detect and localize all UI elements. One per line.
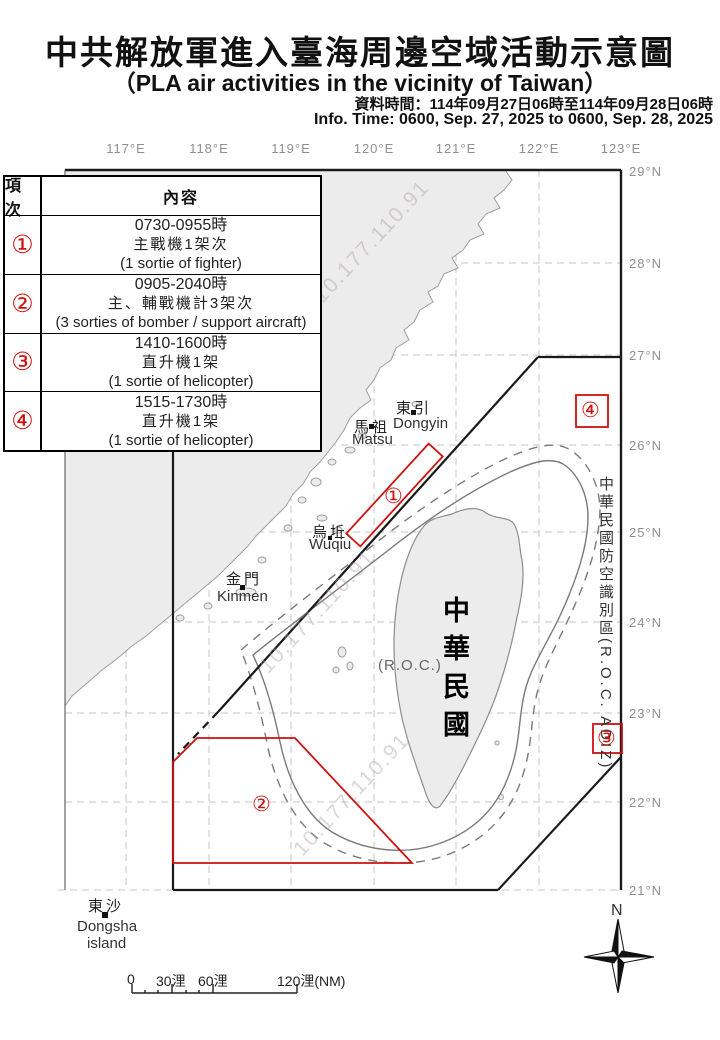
- pla-activity-map-page: 中共解放軍進入臺海周邊空域活動示意圖 （PLA air activities i…: [0, 0, 720, 1040]
- row-number: ①: [5, 216, 42, 274]
- lat-label-27: 27°N: [629, 348, 662, 363]
- lat-label-24: 24°N: [629, 615, 662, 630]
- row-time: 1410-1600時: [135, 334, 228, 353]
- activity-table: 項次 內容 ① 0730-0955時 主戰機1架次 (1 sortie of f…: [3, 175, 322, 452]
- lat-label-21: 21°N: [629, 883, 662, 898]
- table-header-item: 項次: [5, 177, 42, 215]
- lat-label-29: 29°N: [629, 164, 662, 179]
- row-desc-zh: 主、輔戰機計3架次: [108, 294, 254, 313]
- scale-0: 0: [127, 971, 135, 987]
- scale-120: 120浬(NM): [277, 971, 345, 991]
- row-desc-zh: 直升機1架: [142, 412, 220, 431]
- dongyin-label-en: Dongyin: [393, 415, 448, 432]
- row-time: 0730-0955時: [135, 216, 228, 235]
- lat-label-22: 22°N: [629, 795, 662, 810]
- dongsha-label-zh: 東沙: [88, 895, 124, 916]
- info-time-en: Info. Time: 0600, Sep. 27, 2025 to 0600,…: [314, 111, 713, 129]
- scale-60: 60浬: [198, 971, 228, 991]
- lon-label-117: 117°E: [98, 141, 154, 156]
- row-desc-en: (3 sorties of bomber / support aircraft): [56, 313, 307, 332]
- row-desc-zh: 直升機1架: [142, 353, 220, 372]
- lon-label-121: 121°E: [428, 141, 484, 156]
- row-desc-en: (1 sortie of helicopter): [108, 372, 253, 391]
- table-header-row: 項次 內容: [5, 177, 320, 215]
- lon-label-119: 119°E: [263, 141, 319, 156]
- row-number: ③: [5, 334, 42, 392]
- row-number: ②: [5, 275, 42, 333]
- marker-1: ①: [384, 486, 403, 507]
- table-row: ③ 1410-1600時 直升機1架 (1 sortie of helicopt…: [5, 333, 320, 392]
- matsu-label-en: Matsu: [352, 431, 393, 448]
- table-row: ④ 1515-1730時 直升機1架 (1 sortie of helicopt…: [5, 391, 320, 450]
- lon-label-120: 120°E: [346, 141, 402, 156]
- row-time: 0905-2040時: [135, 275, 228, 294]
- marker-3: ③: [597, 728, 616, 749]
- lon-label-118: 118°E: [181, 141, 237, 156]
- lat-label-26: 26°N: [629, 438, 662, 453]
- row-number: ④: [5, 392, 42, 450]
- compass-north-label: N: [611, 902, 623, 920]
- table-header-content: 內容: [42, 177, 320, 215]
- compass-rose-icon: [584, 919, 654, 993]
- lat-label-25: 25°N: [629, 525, 662, 540]
- lat-label-23: 23°N: [629, 706, 662, 721]
- table-row: ① 0730-0955時 主戰機1架次 (1 sortie of fighter…: [5, 215, 320, 274]
- row-desc-en: (1 sortie of fighter): [120, 254, 242, 273]
- lon-label-123: 123°E: [593, 141, 649, 156]
- row-desc-en: (1 sortie of helicopter): [108, 431, 253, 450]
- row-desc-zh: 主戰機1架次: [133, 235, 228, 254]
- scale-30: 30浬: [156, 971, 186, 991]
- kinmen-label-en: Kinmen: [217, 588, 268, 605]
- wuqiu-label-en: Wuqiu: [309, 536, 351, 553]
- lat-label-28: 28°N: [629, 256, 662, 271]
- kinmen-label-zh: 金門: [226, 568, 262, 589]
- lon-label-122: 122°E: [511, 141, 567, 156]
- dongsha-label-en1: Dongsha: [77, 918, 137, 935]
- table-row: ② 0905-2040時 主、輔戰機計3架次 (3 sorties of bom…: [5, 274, 320, 333]
- marker-4: ④: [581, 400, 600, 421]
- dongsha-label-en2: island: [87, 935, 126, 952]
- roc-label-en: (R.O.C.): [378, 657, 442, 674]
- row-time: 1515-1730時: [135, 393, 228, 412]
- marker-2: ②: [252, 794, 271, 815]
